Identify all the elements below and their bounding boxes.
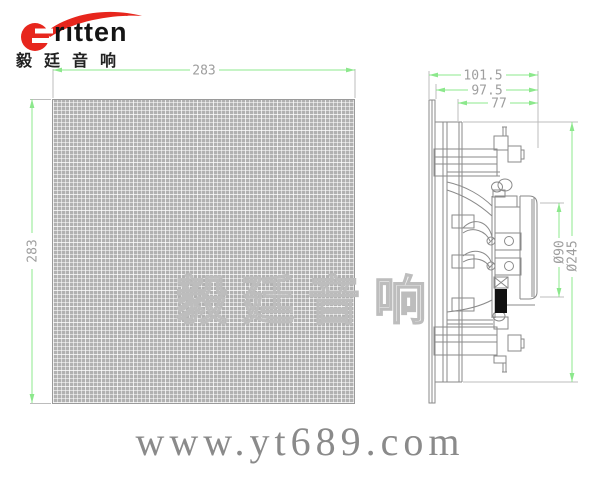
front-width-dimension-label: 283: [192, 64, 215, 79]
depth-inner-dimension-label: 77: [491, 97, 507, 112]
technical-drawing: 283 283 101.5 97.5 77 Ø90: [0, 0, 600, 480]
overall-diameter-dimension-label: Ø245: [566, 240, 581, 271]
front-height-dimension-label: 283: [26, 239, 41, 262]
drawing-page: ritten 毅廷音响 283 283 101.5: [0, 0, 600, 480]
driver-assembly: [492, 196, 537, 318]
front-view-dimensions: 283 283: [26, 64, 356, 404]
lead-wires: [463, 222, 492, 268]
website-url: www.yt689.com: [135, 418, 464, 465]
extension-lines: [30, 69, 578, 404]
side-view-cross-section: [429, 100, 537, 403]
depth-total-dimension-label: 101.5: [463, 69, 502, 84]
magnet-block: [495, 289, 507, 313]
